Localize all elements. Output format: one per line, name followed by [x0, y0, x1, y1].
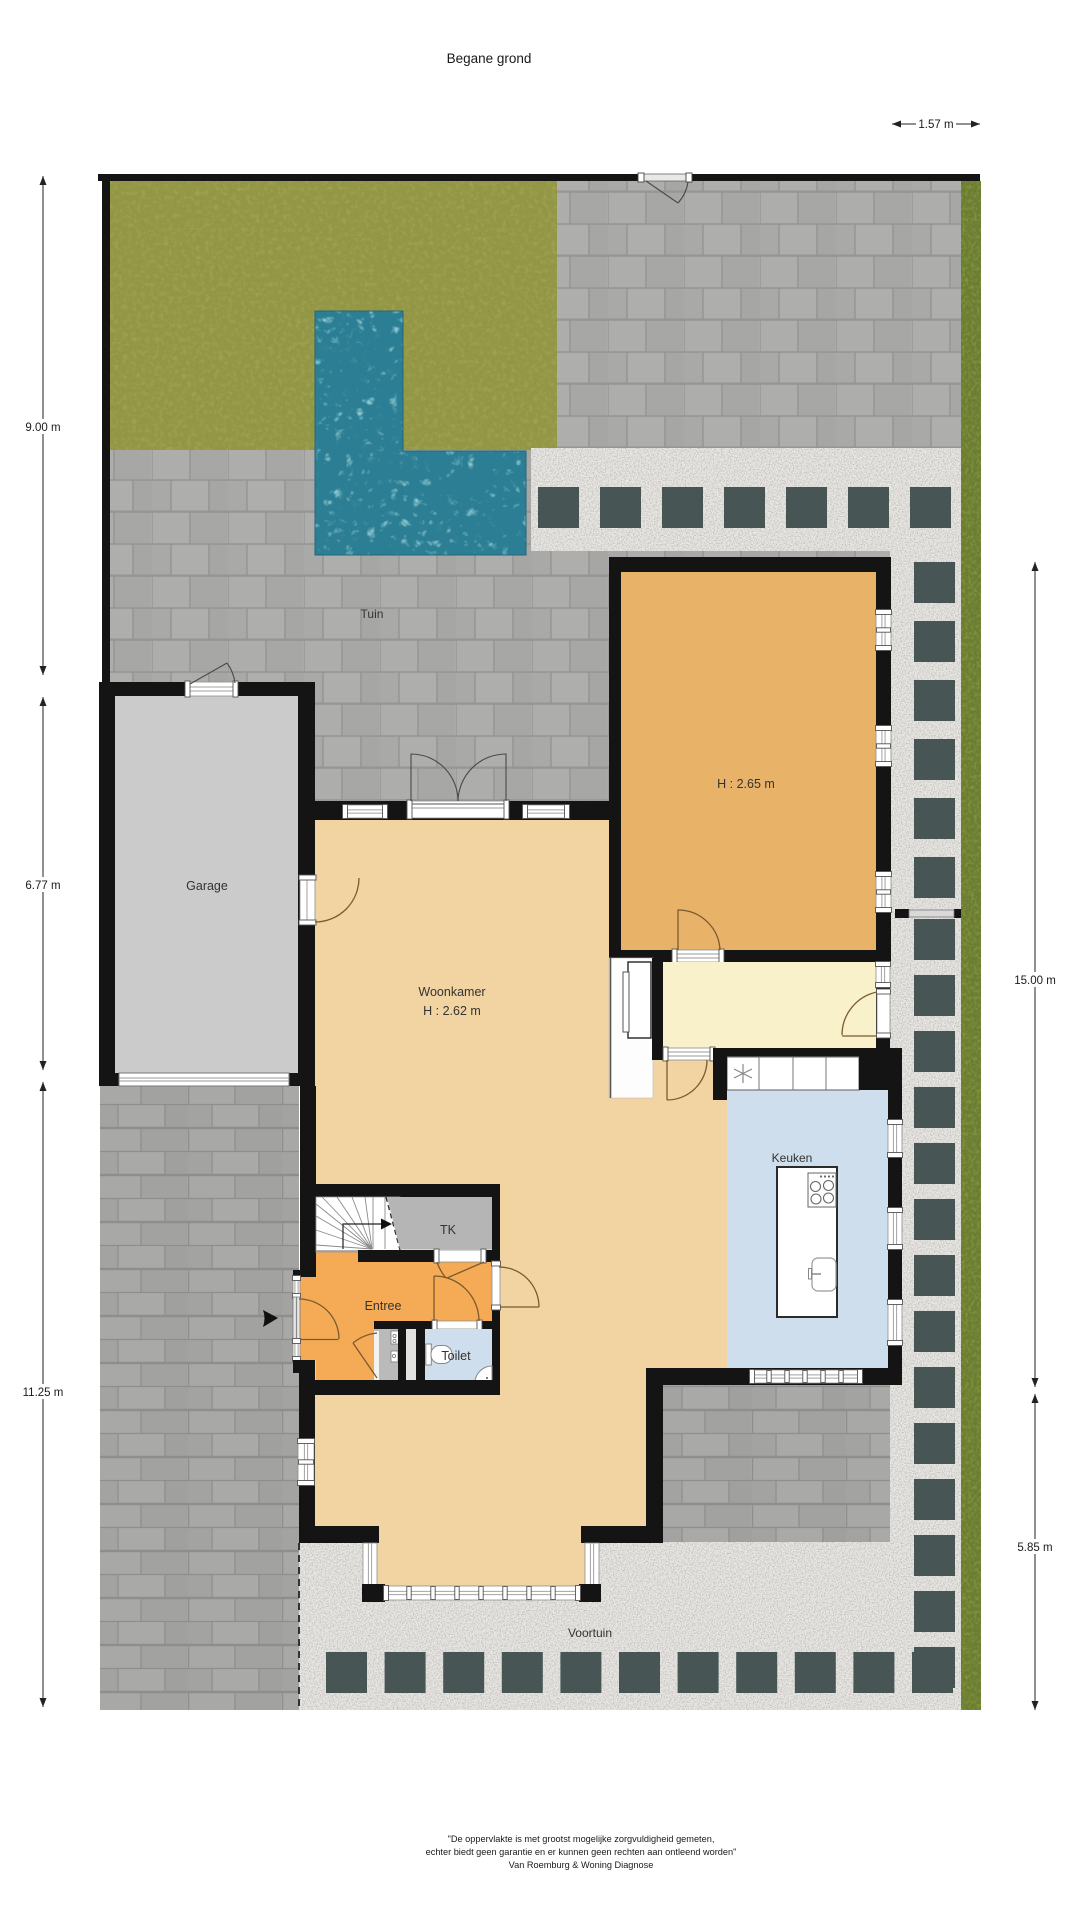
svg-text:Begane grond: Begane grond [447, 51, 532, 66]
svg-text:H : 2.65 m: H : 2.65 m [717, 777, 775, 791]
svg-text:9.00 m: 9.00 m [25, 422, 60, 434]
svg-text:TK: TK [440, 1223, 457, 1237]
svg-text:1.57 m: 1.57 m [918, 119, 953, 131]
svg-text:Tuin: Tuin [361, 607, 384, 621]
svg-text:Garage: Garage [186, 879, 228, 893]
svg-text:6.77 m: 6.77 m [25, 880, 60, 892]
svg-text:Voortuin: Voortuin [568, 1626, 612, 1640]
svg-text:"De oppervlakte is met grootst: "De oppervlakte is met grootst mogelijke… [448, 1834, 715, 1844]
svg-text:Toilet: Toilet [441, 1349, 471, 1363]
svg-text:Van Roemburg & Woning Diagnose: Van Roemburg & Woning Diagnose [509, 1860, 654, 1870]
svg-text:Entree: Entree [365, 1299, 402, 1313]
svg-text:Keuken: Keuken [772, 1151, 813, 1165]
svg-text:5.85 m: 5.85 m [1017, 1542, 1052, 1554]
svg-text:H : 2.62 m: H : 2.62 m [423, 1004, 481, 1018]
svg-text:echter biedt geen garantie en: echter biedt geen garantie en er kunnen … [426, 1847, 737, 1857]
svg-text:Woonkamer: Woonkamer [418, 985, 485, 999]
svg-text:11.25 m: 11.25 m [23, 1387, 64, 1399]
svg-text:15.00 m: 15.00 m [1014, 975, 1056, 987]
